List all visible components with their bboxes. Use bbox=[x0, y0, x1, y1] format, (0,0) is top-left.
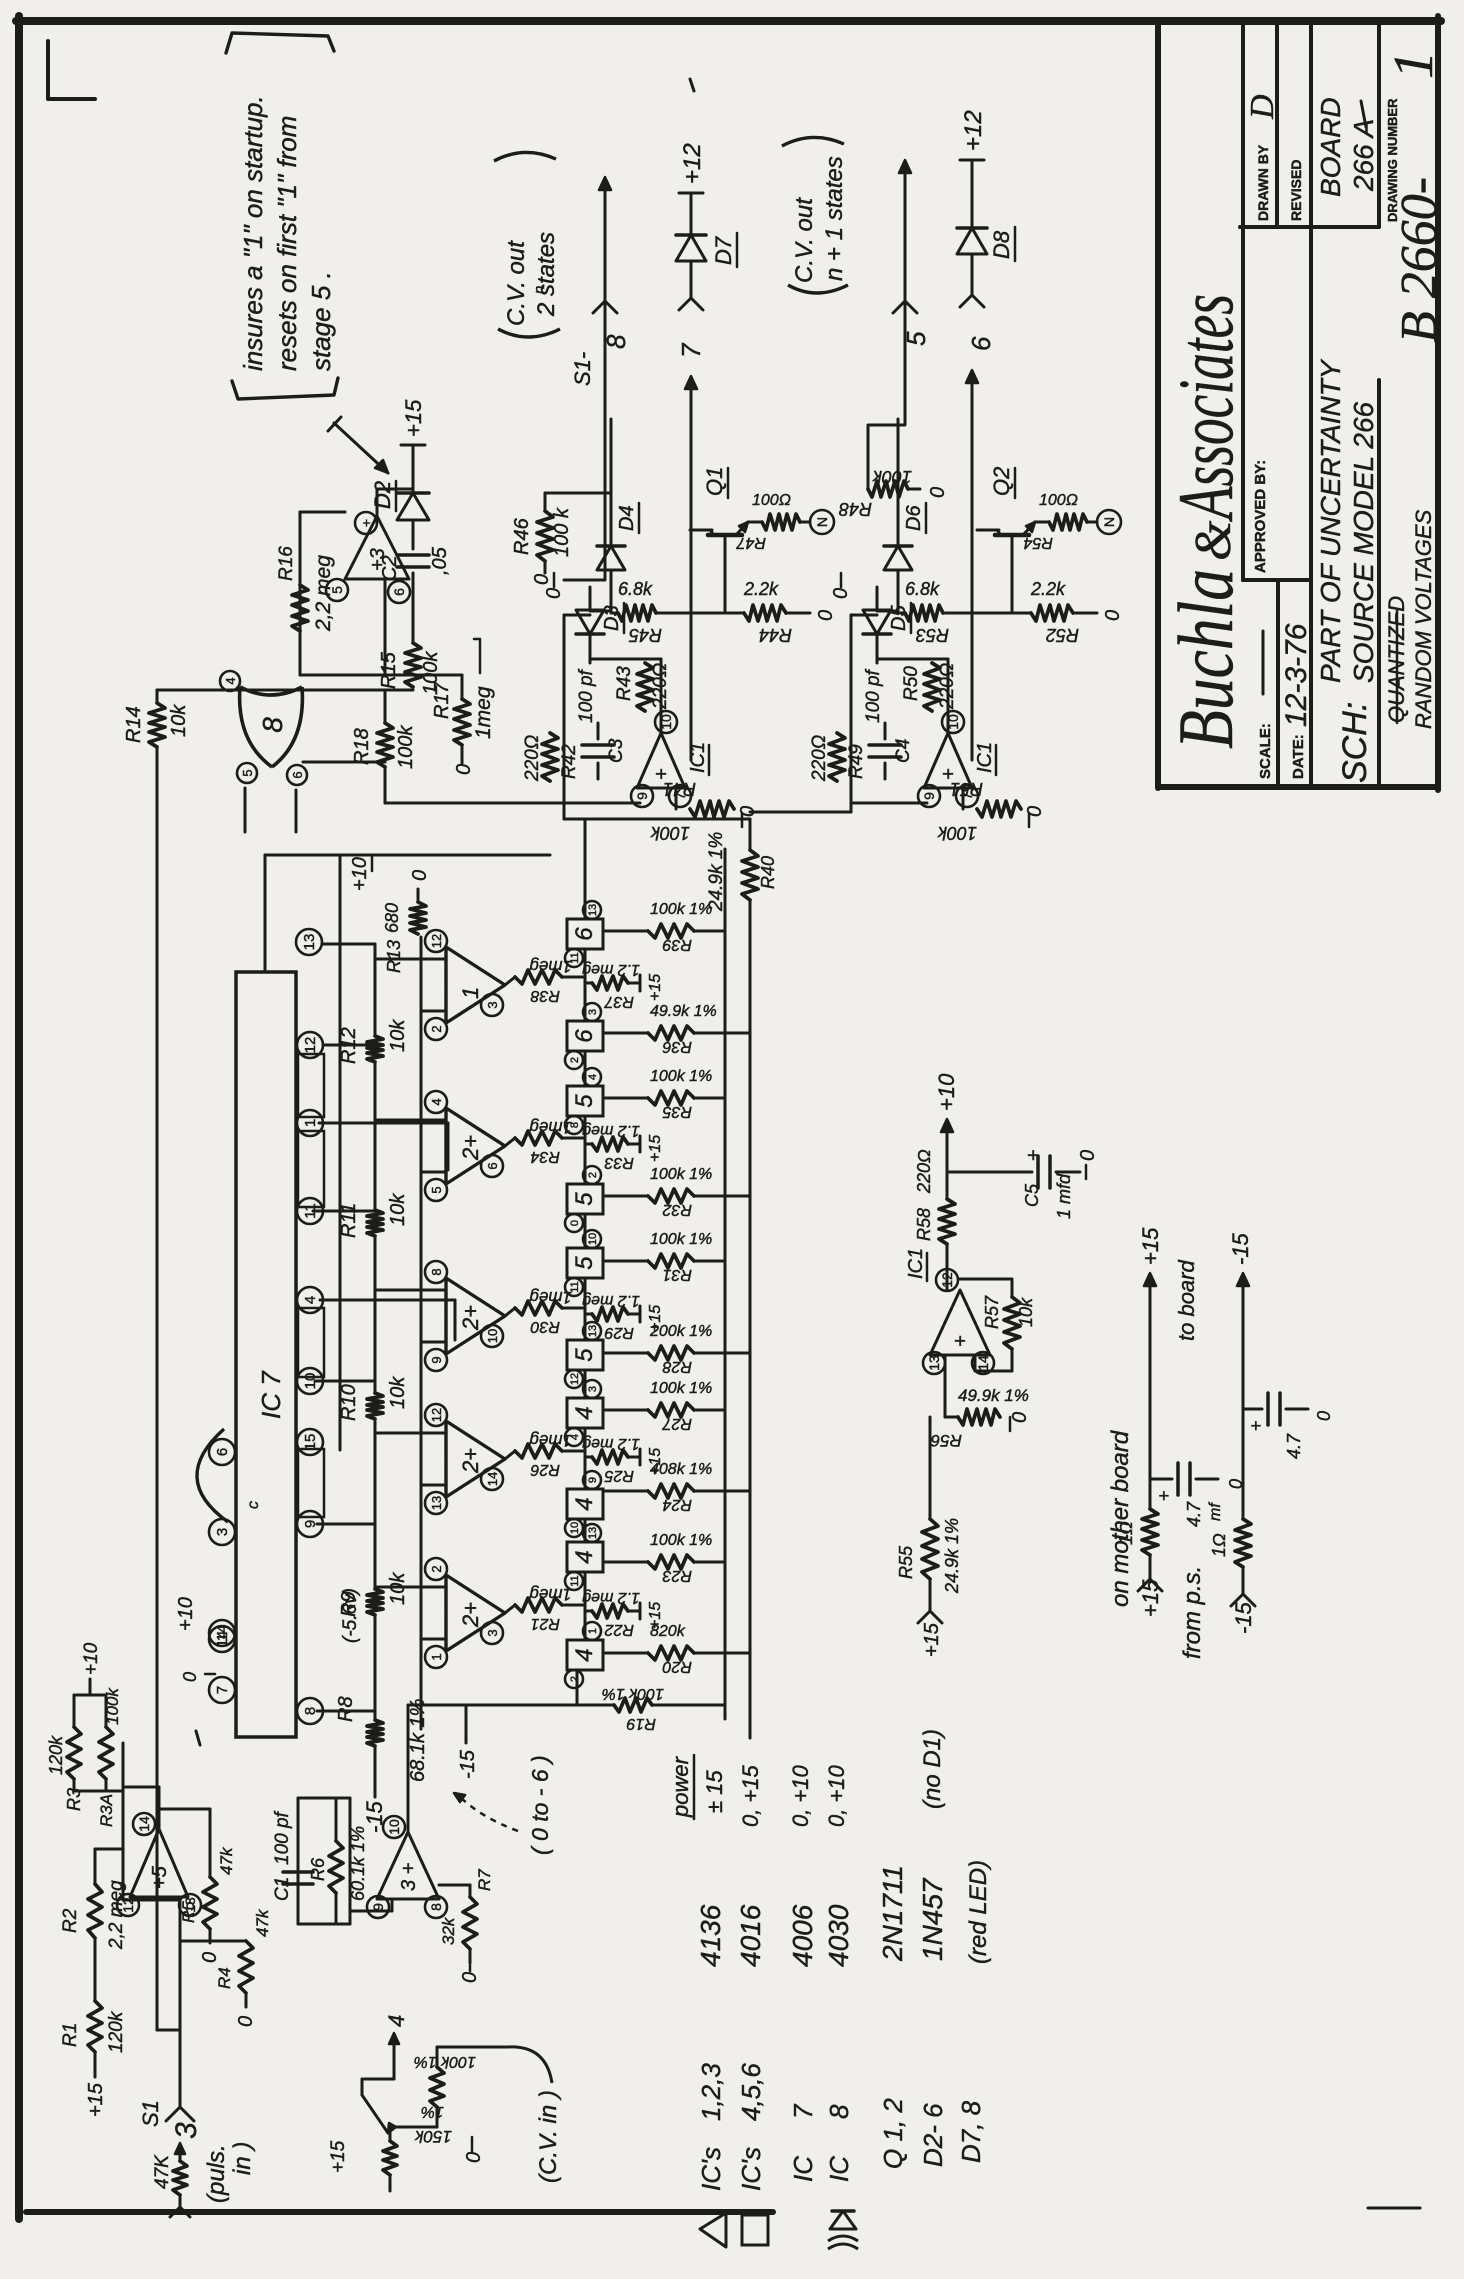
svg-text:3: 3 bbox=[170, 2122, 203, 2139]
svg-text:220Ω: 220Ω bbox=[522, 735, 543, 782]
svg-text:APPROVED BY:: APPROVED BY: bbox=[1252, 460, 1269, 573]
svg-text:D2: D2 bbox=[370, 481, 395, 509]
svg-text:10k: 10k bbox=[387, 1193, 409, 1226]
svg-text:2: 2 bbox=[587, 1172, 599, 1178]
svg-text:+: + bbox=[938, 768, 960, 780]
svg-text:n + 1 states: n + 1 states bbox=[821, 156, 848, 281]
svg-text:D2- 6: D2- 6 bbox=[918, 2103, 948, 2167]
svg-text:resets on first "1" from: resets on first "1" from bbox=[272, 116, 302, 371]
svg-text:0: 0 bbox=[463, 2152, 485, 2163]
svg-text:R58: R58 bbox=[914, 1208, 934, 1241]
svg-text:R43: R43 bbox=[614, 666, 635, 701]
svg-text:5: 5 bbox=[240, 769, 255, 776]
svg-text:R9: R9 bbox=[338, 1591, 360, 1617]
svg-text:IC1: IC1 bbox=[905, 1248, 927, 1279]
svg-text:R21: R21 bbox=[531, 1615, 560, 1632]
svg-text:BOARD: BOARD bbox=[1315, 97, 1346, 197]
svg-text:R38: R38 bbox=[531, 987, 560, 1004]
svg-text:14: 14 bbox=[485, 1472, 500, 1486]
svg-text:0: 0 bbox=[180, 1672, 200, 1682]
svg-text:D: D bbox=[1244, 94, 1281, 120]
svg-text:200k 1%: 200k 1% bbox=[649, 1323, 712, 1340]
svg-text:C.V. out: C.V. out bbox=[503, 240, 530, 326]
svg-text:13: 13 bbox=[587, 1527, 599, 1539]
svg-text:14: 14 bbox=[136, 1816, 152, 1832]
svg-text:5: 5 bbox=[571, 1192, 598, 1206]
svg-text:12: 12 bbox=[302, 1037, 319, 1054]
svg-text:100k 1%: 100k 1% bbox=[650, 1166, 712, 1183]
svg-text:1.2 meg: 1.2 meg bbox=[582, 1435, 640, 1452]
svg-text:+10: +10 bbox=[175, 1597, 197, 1631]
svg-text:R19: R19 bbox=[627, 1715, 656, 1732]
svg-text:PART OF UNCERTAINTY: PART OF UNCERTAINTY bbox=[1315, 358, 1346, 683]
svg-text:D8: D8 bbox=[989, 230, 1014, 259]
svg-text:5: 5 bbox=[571, 1094, 598, 1108]
svg-text:12: 12 bbox=[429, 1408, 444, 1422]
svg-text:C.V. out: C.V. out bbox=[791, 197, 818, 283]
svg-text:3: 3 bbox=[214, 1528, 231, 1536]
svg-text:24.9k 1%: 24.9k 1% bbox=[706, 832, 727, 912]
svg-text:stage 5 .: stage 5 . bbox=[306, 271, 336, 371]
svg-text:R44: R44 bbox=[759, 625, 792, 645]
svg-text:8: 8 bbox=[429, 1268, 444, 1275]
svg-text:2.2k: 2.2k bbox=[743, 579, 779, 599]
svg-text:100k 1%: 100k 1% bbox=[602, 1685, 664, 1702]
svg-text:&: & bbox=[1185, 520, 1242, 561]
svg-text:4016: 4016 bbox=[735, 1904, 766, 1967]
svg-text:9: 9 bbox=[587, 1477, 599, 1483]
svg-text:C5: C5 bbox=[1022, 1183, 1042, 1207]
svg-text:68.1k 1%: 68.1k 1% bbox=[407, 1699, 429, 1782]
svg-text:7: 7 bbox=[788, 2103, 818, 2119]
svg-text:0: 0 bbox=[830, 588, 852, 599]
svg-text:R14: R14 bbox=[123, 706, 145, 743]
svg-text:R51: R51 bbox=[950, 779, 983, 799]
svg-text:0: 0 bbox=[199, 1952, 221, 1963]
svg-text:1%: 1% bbox=[421, 2103, 444, 2120]
svg-text:8: 8 bbox=[824, 2104, 854, 2119]
svg-text:2+: 2+ bbox=[458, 1305, 483, 1331]
svg-text:R42: R42 bbox=[559, 744, 580, 779]
svg-text:100k 1%: 100k 1% bbox=[650, 901, 712, 918]
svg-text:100k: 100k bbox=[937, 823, 977, 843]
svg-text:1: 1 bbox=[1383, 51, 1445, 79]
svg-text:13: 13 bbox=[429, 1496, 444, 1510]
svg-text:Q 1, 2: Q 1, 2 bbox=[878, 2098, 908, 2169]
svg-text:11: 11 bbox=[569, 952, 581, 963]
svg-text:c: c bbox=[245, 1501, 262, 1509]
svg-text:13: 13 bbox=[587, 1325, 599, 1337]
svg-text:4: 4 bbox=[429, 1098, 444, 1105]
svg-text:R57: R57 bbox=[982, 1295, 1002, 1329]
svg-text:100k: 100k bbox=[650, 823, 690, 843]
svg-text:R34: R34 bbox=[531, 1148, 560, 1165]
svg-text:+: + bbox=[1023, 1149, 1045, 1161]
svg-text:R55: R55 bbox=[896, 1545, 916, 1579]
svg-text:0: 0 bbox=[815, 610, 837, 621]
svg-text:4: 4 bbox=[384, 2015, 409, 2027]
svg-text:6: 6 bbox=[214, 1448, 231, 1456]
svg-text:2N1711: 2N1711 bbox=[877, 1865, 908, 1962]
svg-text:0: 0 bbox=[235, 2016, 257, 2027]
svg-text:8: 8 bbox=[257, 717, 288, 733]
svg-text:C4: C4 bbox=[893, 739, 914, 763]
svg-text:5: 5 bbox=[329, 586, 345, 594]
svg-text:4: 4 bbox=[569, 1434, 581, 1440]
svg-text:(C.V. in ): (C.V. in ) bbox=[535, 2090, 562, 2183]
svg-text:N: N bbox=[814, 517, 830, 527]
svg-text:120k: 120k bbox=[106, 2010, 127, 2053]
svg-text:mf: mf bbox=[1207, 1502, 1224, 1521]
svg-text:IC's: IC's bbox=[696, 2147, 726, 2191]
svg-text:100Ω: 100Ω bbox=[1039, 492, 1078, 509]
svg-text:D7, 8: D7, 8 bbox=[956, 2100, 986, 2163]
svg-text:+15: +15 bbox=[921, 1622, 943, 1657]
svg-text:+10: +10 bbox=[934, 1073, 959, 1111]
svg-text:0, +10: 0, +10 bbox=[824, 1764, 849, 1827]
svg-text:+: + bbox=[950, 1335, 972, 1347]
svg-text:14: 14 bbox=[975, 1355, 991, 1371]
svg-text:R5: R5 bbox=[179, 1901, 198, 1923]
svg-text:10k: 10k bbox=[168, 704, 190, 737]
svg-text:4: 4 bbox=[571, 1648, 598, 1661]
svg-text:R41: R41 bbox=[663, 779, 696, 799]
svg-text:R35: R35 bbox=[663, 1103, 692, 1120]
svg-text:13: 13 bbox=[926, 1355, 942, 1371]
svg-text:in ): in ) bbox=[229, 2142, 256, 2175]
svg-text:R22: R22 bbox=[605, 1621, 634, 1638]
svg-text:+: + bbox=[651, 768, 673, 780]
svg-text:100k 1%: 100k 1% bbox=[650, 1532, 712, 1549]
svg-text:R8: R8 bbox=[335, 1696, 357, 1722]
svg-text:0: 0 bbox=[1077, 1150, 1099, 1161]
svg-text:3: 3 bbox=[485, 1629, 500, 1636]
svg-text:1 mfd: 1 mfd bbox=[1054, 1173, 1074, 1219]
svg-text:2: 2 bbox=[569, 1057, 581, 1063]
svg-text:R23: R23 bbox=[663, 1567, 692, 1584]
svg-text:+15: +15 bbox=[647, 1135, 664, 1162]
svg-text:R18: R18 bbox=[351, 728, 373, 765]
svg-text:2: 2 bbox=[429, 1025, 444, 1032]
svg-text:D4: D4 bbox=[616, 505, 638, 531]
svg-text:3 +: 3 + bbox=[398, 1863, 420, 1891]
svg-text:R52: R52 bbox=[1046, 625, 1079, 645]
svg-text:,05: ,05 bbox=[429, 546, 451, 575]
svg-text:R3A: R3A bbox=[97, 1794, 116, 1827]
svg-text:47K: 47K bbox=[152, 2154, 173, 2189]
svg-text:N: N bbox=[1101, 517, 1117, 527]
svg-text:100 pf: 100 pf bbox=[576, 668, 597, 723]
svg-text:+: + bbox=[358, 519, 374, 527]
svg-text:13: 13 bbox=[587, 904, 599, 916]
svg-text:120k: 120k bbox=[46, 1735, 66, 1775]
svg-text:+15: +15 bbox=[1138, 1579, 1163, 1617]
svg-text:9: 9 bbox=[634, 792, 650, 800]
svg-text:0: 0 bbox=[409, 870, 431, 881]
svg-text:(no D1): (no D1) bbox=[919, 1729, 946, 1809]
svg-text:2.2k: 2.2k bbox=[1030, 579, 1066, 599]
svg-text:± 15: ± 15 bbox=[702, 1770, 727, 1813]
svg-text:R32: R32 bbox=[663, 1201, 692, 1218]
svg-text:2+: 2+ bbox=[458, 1448, 483, 1474]
svg-text:6: 6 bbox=[391, 588, 407, 596]
svg-text:1Ω: 1Ω bbox=[1116, 1521, 1136, 1545]
svg-text:100k 1%: 100k 1% bbox=[650, 1231, 712, 1248]
svg-text:R24: R24 bbox=[663, 1496, 692, 1513]
svg-text:D7: D7 bbox=[711, 236, 736, 265]
svg-text:R45: R45 bbox=[628, 625, 662, 645]
svg-text:7: 7 bbox=[214, 1686, 231, 1694]
svg-text:1.2 meg: 1.2 meg bbox=[582, 961, 640, 978]
svg-text:1: 1 bbox=[302, 1119, 319, 1127]
svg-text:220Ω: 220Ω bbox=[914, 1149, 934, 1194]
svg-text:100 pf: 100 pf bbox=[272, 1810, 293, 1865]
svg-text:R28: R28 bbox=[663, 1358, 692, 1375]
svg-text:2: 2 bbox=[429, 1565, 444, 1572]
svg-text:4.7: 4.7 bbox=[1184, 1501, 1204, 1527]
svg-text:-15: -15 bbox=[457, 1749, 479, 1779]
svg-text:R56: R56 bbox=[930, 1431, 962, 1450]
svg-text:SOURCE MODEL 266: SOURCE MODEL 266 bbox=[1348, 401, 1379, 683]
svg-text:R48: R48 bbox=[839, 499, 872, 519]
svg-text:1.2 meg: 1.2 meg bbox=[582, 1292, 640, 1309]
svg-text:+15: +15 bbox=[328, 2140, 349, 2173]
svg-text:R27: R27 bbox=[662, 1415, 692, 1432]
svg-text:32k: 32k bbox=[439, 1916, 458, 1945]
svg-text:100k 1%: 100k 1% bbox=[650, 1068, 712, 1085]
svg-text:R13: R13 bbox=[384, 940, 404, 973]
svg-text:R4: R4 bbox=[215, 1967, 234, 1989]
svg-text:4,5,6: 4,5,6 bbox=[736, 2063, 766, 2121]
svg-text:(red LED): (red LED) bbox=[965, 1860, 992, 1964]
svg-text:Buchla: Buchla bbox=[1162, 569, 1249, 749]
svg-text:R47: R47 bbox=[736, 534, 766, 551]
svg-text:100k 1%: 100k 1% bbox=[414, 2053, 476, 2070]
svg-text:+15: +15 bbox=[85, 2082, 107, 2117]
svg-text:5: 5 bbox=[571, 1256, 598, 1270]
svg-text:0: 0 bbox=[459, 1972, 481, 1983]
svg-text:SCH:: SCH: bbox=[1336, 702, 1374, 783]
svg-text:REVISED: REVISED bbox=[1288, 160, 1304, 221]
svg-text:C3: C3 bbox=[606, 738, 627, 763]
svg-text:6: 6 bbox=[485, 1162, 500, 1169]
svg-text:9: 9 bbox=[429, 1356, 444, 1363]
svg-text:4: 4 bbox=[571, 1406, 598, 1419]
svg-text:R1: R1 bbox=[60, 2023, 81, 2047]
svg-text:100 k: 100 k bbox=[551, 507, 573, 557]
svg-text:0: 0 bbox=[543, 588, 565, 599]
svg-text:1meg: 1meg bbox=[472, 686, 495, 739]
svg-text:47k: 47k bbox=[217, 1846, 236, 1875]
svg-text:12-3-76: 12-3-76 bbox=[1280, 623, 1313, 727]
svg-text:60.1k 1%: 60.1k 1% bbox=[348, 1826, 368, 1901]
svg-text:R53: R53 bbox=[916, 625, 949, 645]
svg-text:R39: R39 bbox=[663, 936, 692, 953]
svg-text:n: n bbox=[531, 286, 548, 294]
svg-text:1.2 meg: 1.2 meg bbox=[582, 1589, 640, 1606]
svg-text:100Ω: 100Ω bbox=[752, 492, 791, 509]
svg-text:(puls.: (puls. bbox=[203, 2144, 230, 2203]
svg-text:4: 4 bbox=[571, 1550, 598, 1563]
svg-text:+15: +15 bbox=[1138, 1227, 1163, 1265]
svg-text:R50: R50 bbox=[901, 666, 922, 701]
svg-text:3: 3 bbox=[485, 1001, 500, 1008]
svg-text:Q1: Q1 bbox=[702, 467, 727, 496]
svg-text:+3: +3 bbox=[367, 548, 389, 571]
svg-text:( 0 to - 6 ): ( 0 to - 6 ) bbox=[527, 1755, 553, 1855]
svg-text:100k 1%: 100k 1% bbox=[650, 1380, 712, 1397]
svg-text:R30: R30 bbox=[531, 1318, 560, 1335]
svg-text:820k: 820k bbox=[650, 1623, 686, 1640]
svg-text:408k 1%: 408k 1% bbox=[650, 1461, 712, 1478]
svg-text:1: 1 bbox=[429, 1653, 444, 1660]
svg-text:S1: S1 bbox=[138, 2100, 163, 2127]
svg-text:7: 7 bbox=[676, 342, 706, 358]
svg-text:0: 0 bbox=[531, 574, 553, 585]
svg-text:266 A: 266 A bbox=[1348, 119, 1379, 192]
svg-text:6: 6 bbox=[290, 771, 305, 778]
svg-text:1: 1 bbox=[458, 987, 483, 999]
svg-text:49.9k 1%: 49.9k 1% bbox=[650, 1003, 717, 1020]
svg-text:+10: +10 bbox=[81, 1642, 102, 1675]
svg-text:1: 1 bbox=[587, 1628, 599, 1634]
svg-text:6.8k: 6.8k bbox=[618, 579, 653, 599]
svg-text:6: 6 bbox=[966, 336, 996, 351]
svg-text:C1: C1 bbox=[272, 1877, 293, 1901]
svg-text:100k: 100k bbox=[103, 1687, 122, 1725]
svg-text:+: + bbox=[1246, 1420, 1266, 1431]
svg-text:R31: R31 bbox=[663, 1266, 692, 1283]
svg-text:-15: -15 bbox=[1231, 1601, 1256, 1634]
svg-text:1.2 meg: 1.2 meg bbox=[582, 1122, 640, 1139]
svg-text:2 states: 2 states bbox=[533, 232, 560, 317]
svg-text:3: 3 bbox=[587, 1386, 599, 1392]
svg-text:6: 6 bbox=[571, 927, 598, 941]
svg-text:10: 10 bbox=[569, 1522, 581, 1534]
svg-text:4: 4 bbox=[571, 1497, 598, 1510]
svg-text:+12: +12 bbox=[679, 143, 706, 184]
svg-text:49.9k 1%: 49.9k 1% bbox=[958, 1386, 1029, 1405]
svg-text:1,2,3: 1,2,3 bbox=[696, 2063, 726, 2121]
svg-text:IC1: IC1 bbox=[974, 742, 996, 773]
svg-text:12: 12 bbox=[569, 1373, 581, 1385]
svg-text:R33: R33 bbox=[605, 1154, 634, 1171]
svg-text:+12: +12 bbox=[960, 110, 987, 151]
svg-text:B 2660-: B 2660- bbox=[1391, 177, 1448, 343]
svg-text:0: 0 bbox=[1314, 1411, 1334, 1421]
svg-text:2+: 2+ bbox=[458, 1135, 483, 1161]
svg-text:0: 0 bbox=[1024, 806, 1046, 817]
svg-text:4: 4 bbox=[223, 677, 238, 684]
svg-text:4136: 4136 bbox=[695, 1904, 726, 1967]
svg-text:IC: IC bbox=[788, 2156, 818, 2182]
svg-text:to board: to board bbox=[1174, 1260, 1199, 1341]
svg-text:+: + bbox=[1154, 1490, 1174, 1501]
svg-text:1meg: 1meg bbox=[529, 1585, 572, 1604]
svg-text:0: 0 bbox=[569, 1220, 581, 1226]
svg-text:10k: 10k bbox=[1016, 1297, 1036, 1327]
svg-text:0: 0 bbox=[453, 764, 475, 775]
svg-text:8: 8 bbox=[569, 1122, 581, 1128]
svg-text:10: 10 bbox=[587, 1233, 599, 1245]
svg-text:R36: R36 bbox=[663, 1038, 692, 1055]
svg-text:11: 11 bbox=[569, 1575, 581, 1586]
svg-text:150k: 150k bbox=[414, 2127, 452, 2146]
svg-text:R26: R26 bbox=[531, 1461, 560, 1478]
svg-text:14: 14 bbox=[214, 1631, 231, 1648]
svg-text:R20: R20 bbox=[663, 1658, 692, 1675]
svg-text:2: 2 bbox=[569, 1676, 581, 1682]
svg-text:4.7: 4.7 bbox=[1284, 1433, 1304, 1459]
svg-text:8: 8 bbox=[601, 334, 631, 349]
svg-text:100 pf: 100 pf bbox=[863, 668, 884, 723]
svg-text:47k: 47k bbox=[253, 1908, 272, 1937]
svg-text:0, +10: 0, +10 bbox=[788, 1764, 813, 1827]
svg-text:DRAWN BY: DRAWN BY bbox=[1255, 144, 1271, 221]
svg-text:IC 7: IC 7 bbox=[256, 1370, 286, 1419]
svg-text:R25: R25 bbox=[605, 1467, 634, 1484]
svg-text:Associates: Associates bbox=[1162, 294, 1249, 522]
svg-text:6.8k: 6.8k bbox=[905, 579, 940, 599]
svg-text:5: 5 bbox=[571, 1348, 598, 1362]
svg-text:10k: 10k bbox=[387, 1019, 409, 1052]
svg-text:1Ω: 1Ω bbox=[1209, 1533, 1229, 1557]
svg-text:R37: R37 bbox=[604, 993, 634, 1010]
svg-text:R46: R46 bbox=[511, 517, 533, 555]
svg-text:S1-: S1- bbox=[570, 352, 595, 386]
svg-text:IC1: IC1 bbox=[687, 742, 709, 773]
svg-text:Q2: Q2 bbox=[989, 467, 1014, 496]
svg-text:5: 5 bbox=[901, 331, 931, 346]
svg-text:4: 4 bbox=[587, 1074, 599, 1080]
svg-text:on mother board: on mother board bbox=[1107, 1430, 1134, 1607]
svg-text:4006: 4006 bbox=[787, 1904, 818, 1967]
svg-text:-15: -15 bbox=[1228, 1232, 1253, 1265]
svg-text:IC: IC bbox=[824, 2156, 854, 2182]
svg-text:9: 9 bbox=[921, 792, 937, 800]
svg-text:220Ω: 220Ω bbox=[809, 735, 830, 782]
svg-text:power: power bbox=[668, 1755, 693, 1818]
svg-text:100k: 100k bbox=[395, 725, 417, 769]
svg-text:8: 8 bbox=[428, 1903, 444, 1911]
svg-text:100k: 100k bbox=[872, 467, 912, 487]
svg-text:SCALE:: SCALE: bbox=[1257, 723, 1274, 779]
svg-text:2+: 2+ bbox=[458, 1602, 483, 1628]
svg-text:0, +15: 0, +15 bbox=[738, 1764, 763, 1827]
svg-text:insures a "1" on startup.: insures a "1" on startup. bbox=[238, 95, 268, 371]
svg-text:R2: R2 bbox=[60, 1908, 81, 1933]
svg-text:+5: +5 bbox=[149, 1865, 171, 1889]
svg-text:+10: +10 bbox=[349, 857, 371, 891]
svg-text:+15: +15 bbox=[401, 399, 426, 437]
svg-text:6: 6 bbox=[571, 1029, 598, 1043]
svg-text:4: 4 bbox=[302, 1296, 319, 1304]
svg-text:R54: R54 bbox=[1024, 534, 1053, 551]
svg-text:IC's: IC's bbox=[736, 2147, 766, 2191]
svg-text:3: 3 bbox=[587, 1009, 599, 1015]
svg-text:from p.s.: from p.s. bbox=[1179, 1566, 1206, 1659]
svg-text:4030: 4030 bbox=[823, 1904, 854, 1967]
svg-text:13: 13 bbox=[301, 934, 318, 951]
svg-text:0: 0 bbox=[927, 487, 949, 498]
svg-text:11: 11 bbox=[569, 1281, 581, 1292]
svg-text:R40: R40 bbox=[758, 856, 778, 889]
svg-text:R16: R16 bbox=[276, 546, 297, 581]
svg-text:0: 0 bbox=[1009, 1412, 1031, 1423]
svg-text:12: 12 bbox=[120, 1897, 136, 1913]
svg-text:5: 5 bbox=[429, 1186, 444, 1193]
svg-text:0: 0 bbox=[1102, 610, 1124, 621]
